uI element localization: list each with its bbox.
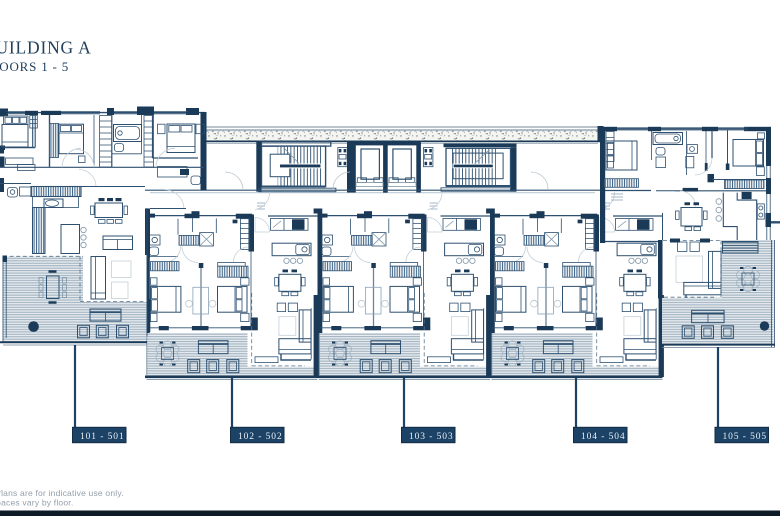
svg-text:Spaces vary by floor.: Spaces vary by floor. xyxy=(0,497,73,507)
svg-text:102 - 502: 102 - 502 xyxy=(238,432,283,442)
svg-text:105 - 505: 105 - 505 xyxy=(723,432,768,442)
svg-text:104 - 504: 104 - 504 xyxy=(581,432,626,442)
svg-text:FLOORS 1 - 5: FLOORS 1 - 5 xyxy=(0,59,69,74)
svg-text:BUILDING A: BUILDING A xyxy=(0,38,92,58)
svg-text:101 - 501: 101 - 501 xyxy=(80,432,125,442)
svg-text:103 - 503: 103 - 503 xyxy=(409,432,454,442)
